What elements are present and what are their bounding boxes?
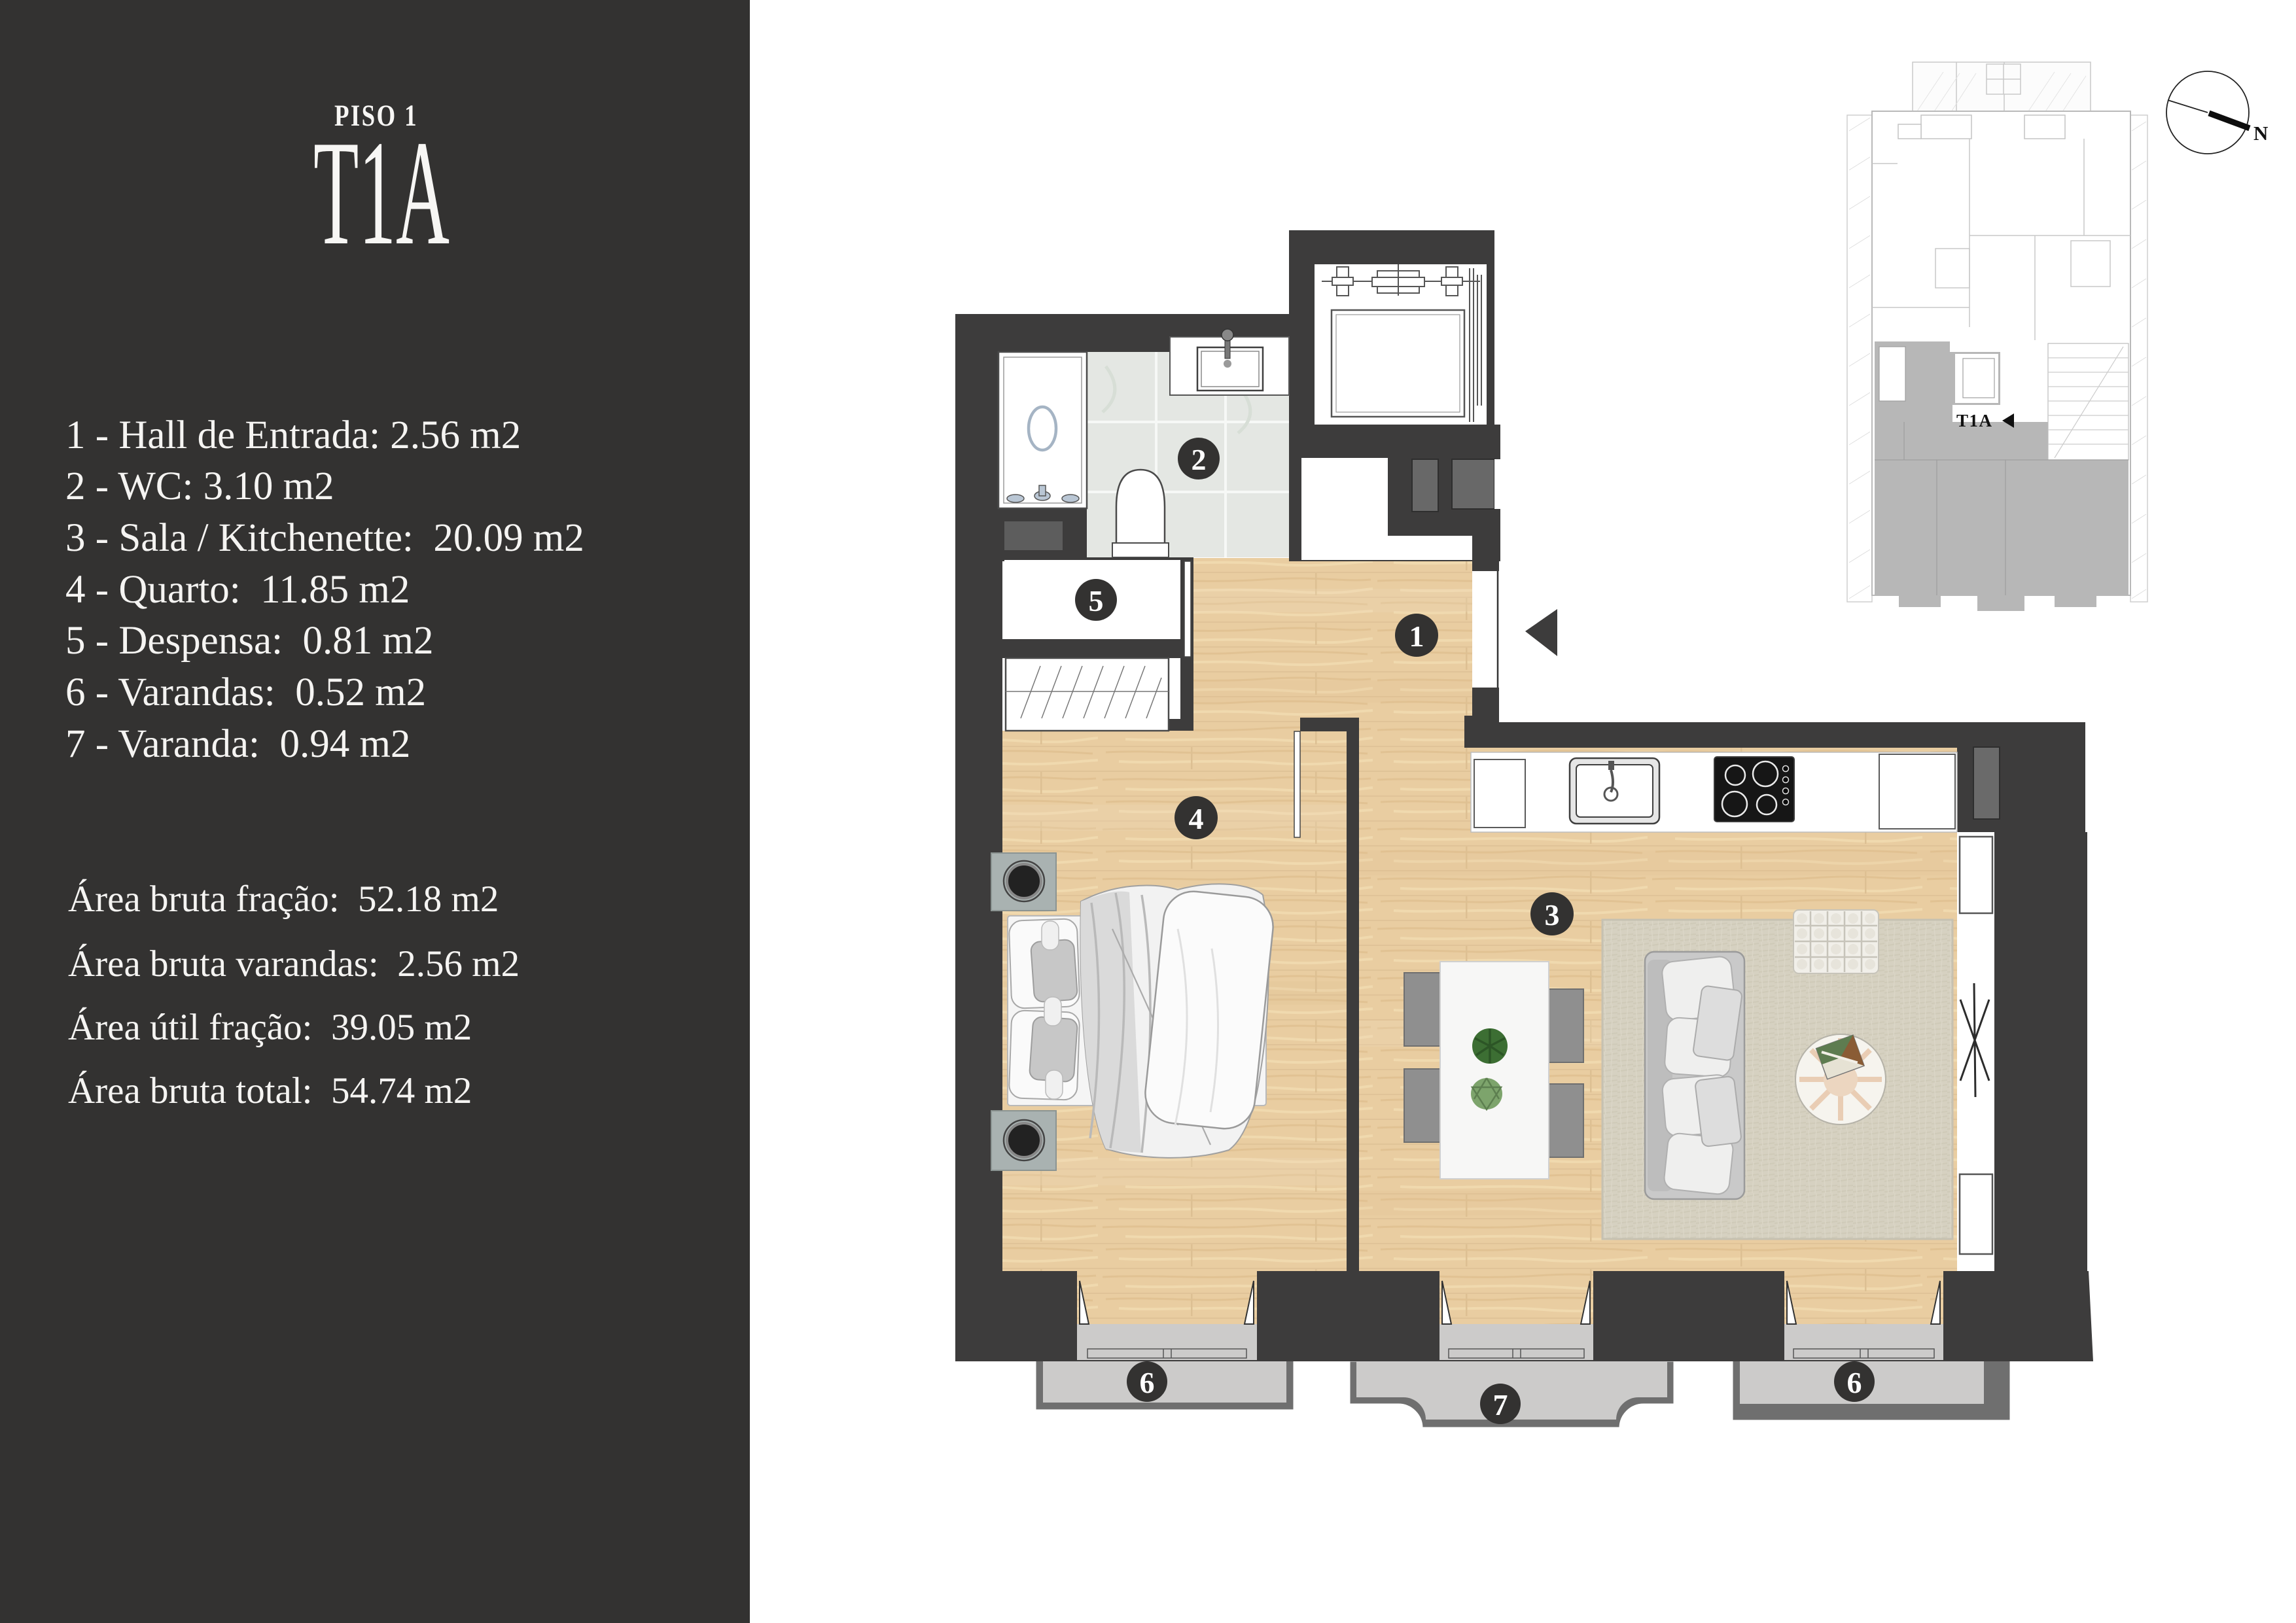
- svg-text:T1A: T1A: [1956, 411, 1993, 430]
- svg-text:6: 6: [1140, 1366, 1155, 1399]
- svg-text:3: 3: [1545, 898, 1560, 932]
- svg-text:6: 6: [1847, 1366, 1862, 1399]
- svg-text:6 - Varandas: 0.52 m2: 6 - Varandas: 0.52 m2: [65, 671, 426, 714]
- svg-text:Área bruta varandas: 2.56 m2: Área bruta varandas: 2.56 m2: [68, 943, 520, 985]
- svg-text:7: 7: [1493, 1388, 1508, 1422]
- svg-text:4 - Quarto: 11.85 m2: 4 - Quarto: 11.85 m2: [65, 568, 410, 612]
- svg-text:3 - Sala / Kitchenette: 20.09: 3 - Sala / Kitchenette: 20.09 m2: [65, 516, 584, 560]
- svg-text:2: 2: [1192, 443, 1207, 476]
- svg-text:5: 5: [1089, 584, 1104, 618]
- svg-text:7 - Varanda: 0.94 m2: 7 - Varanda: 0.94 m2: [65, 722, 410, 766]
- svg-text:5 - Despensa: 0.81 m2: 5 - Despensa: 0.81 m2: [65, 619, 433, 663]
- svg-text:Área bruta fração: 52.18 m2: Área bruta fração: 52.18 m2: [68, 879, 499, 920]
- svg-text:N: N: [2253, 122, 2268, 145]
- svg-text:Área bruta total: 54.74 m2: Área bruta total: 54.74 m2: [68, 1070, 472, 1111]
- svg-text:1: 1: [1409, 620, 1424, 653]
- svg-text:1 - Hall de Entrada: 2.56 m2: 1 - Hall de Entrada: 2.56 m2: [65, 413, 521, 457]
- svg-text:T1A: T1A: [313, 109, 450, 276]
- svg-text:2 - WC: 3.10 m2: 2 - WC: 3.10 m2: [65, 464, 334, 508]
- svg-text:Área útil fração: 39.05 m2: Área útil fração: 39.05 m2: [68, 1007, 472, 1048]
- svg-text:4: 4: [1189, 802, 1204, 835]
